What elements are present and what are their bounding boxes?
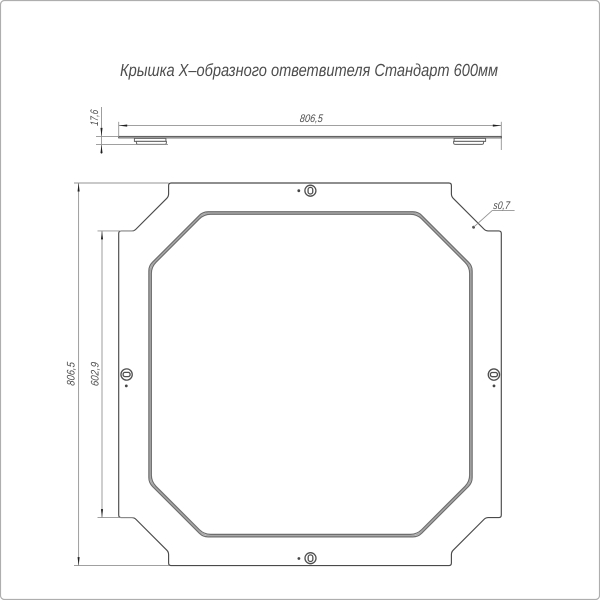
svg-text:806,5: 806,5 xyxy=(299,113,324,125)
svg-text:806,5: 806,5 xyxy=(66,361,78,387)
svg-text:602,9: 602,9 xyxy=(89,361,101,386)
svg-text:s0,7: s0,7 xyxy=(493,200,511,212)
svg-text:Крышка Х–образного ответвителя: Крышка Х–образного ответвителя Стандарт … xyxy=(120,60,498,80)
svg-text:17,6: 17,6 xyxy=(89,108,101,126)
